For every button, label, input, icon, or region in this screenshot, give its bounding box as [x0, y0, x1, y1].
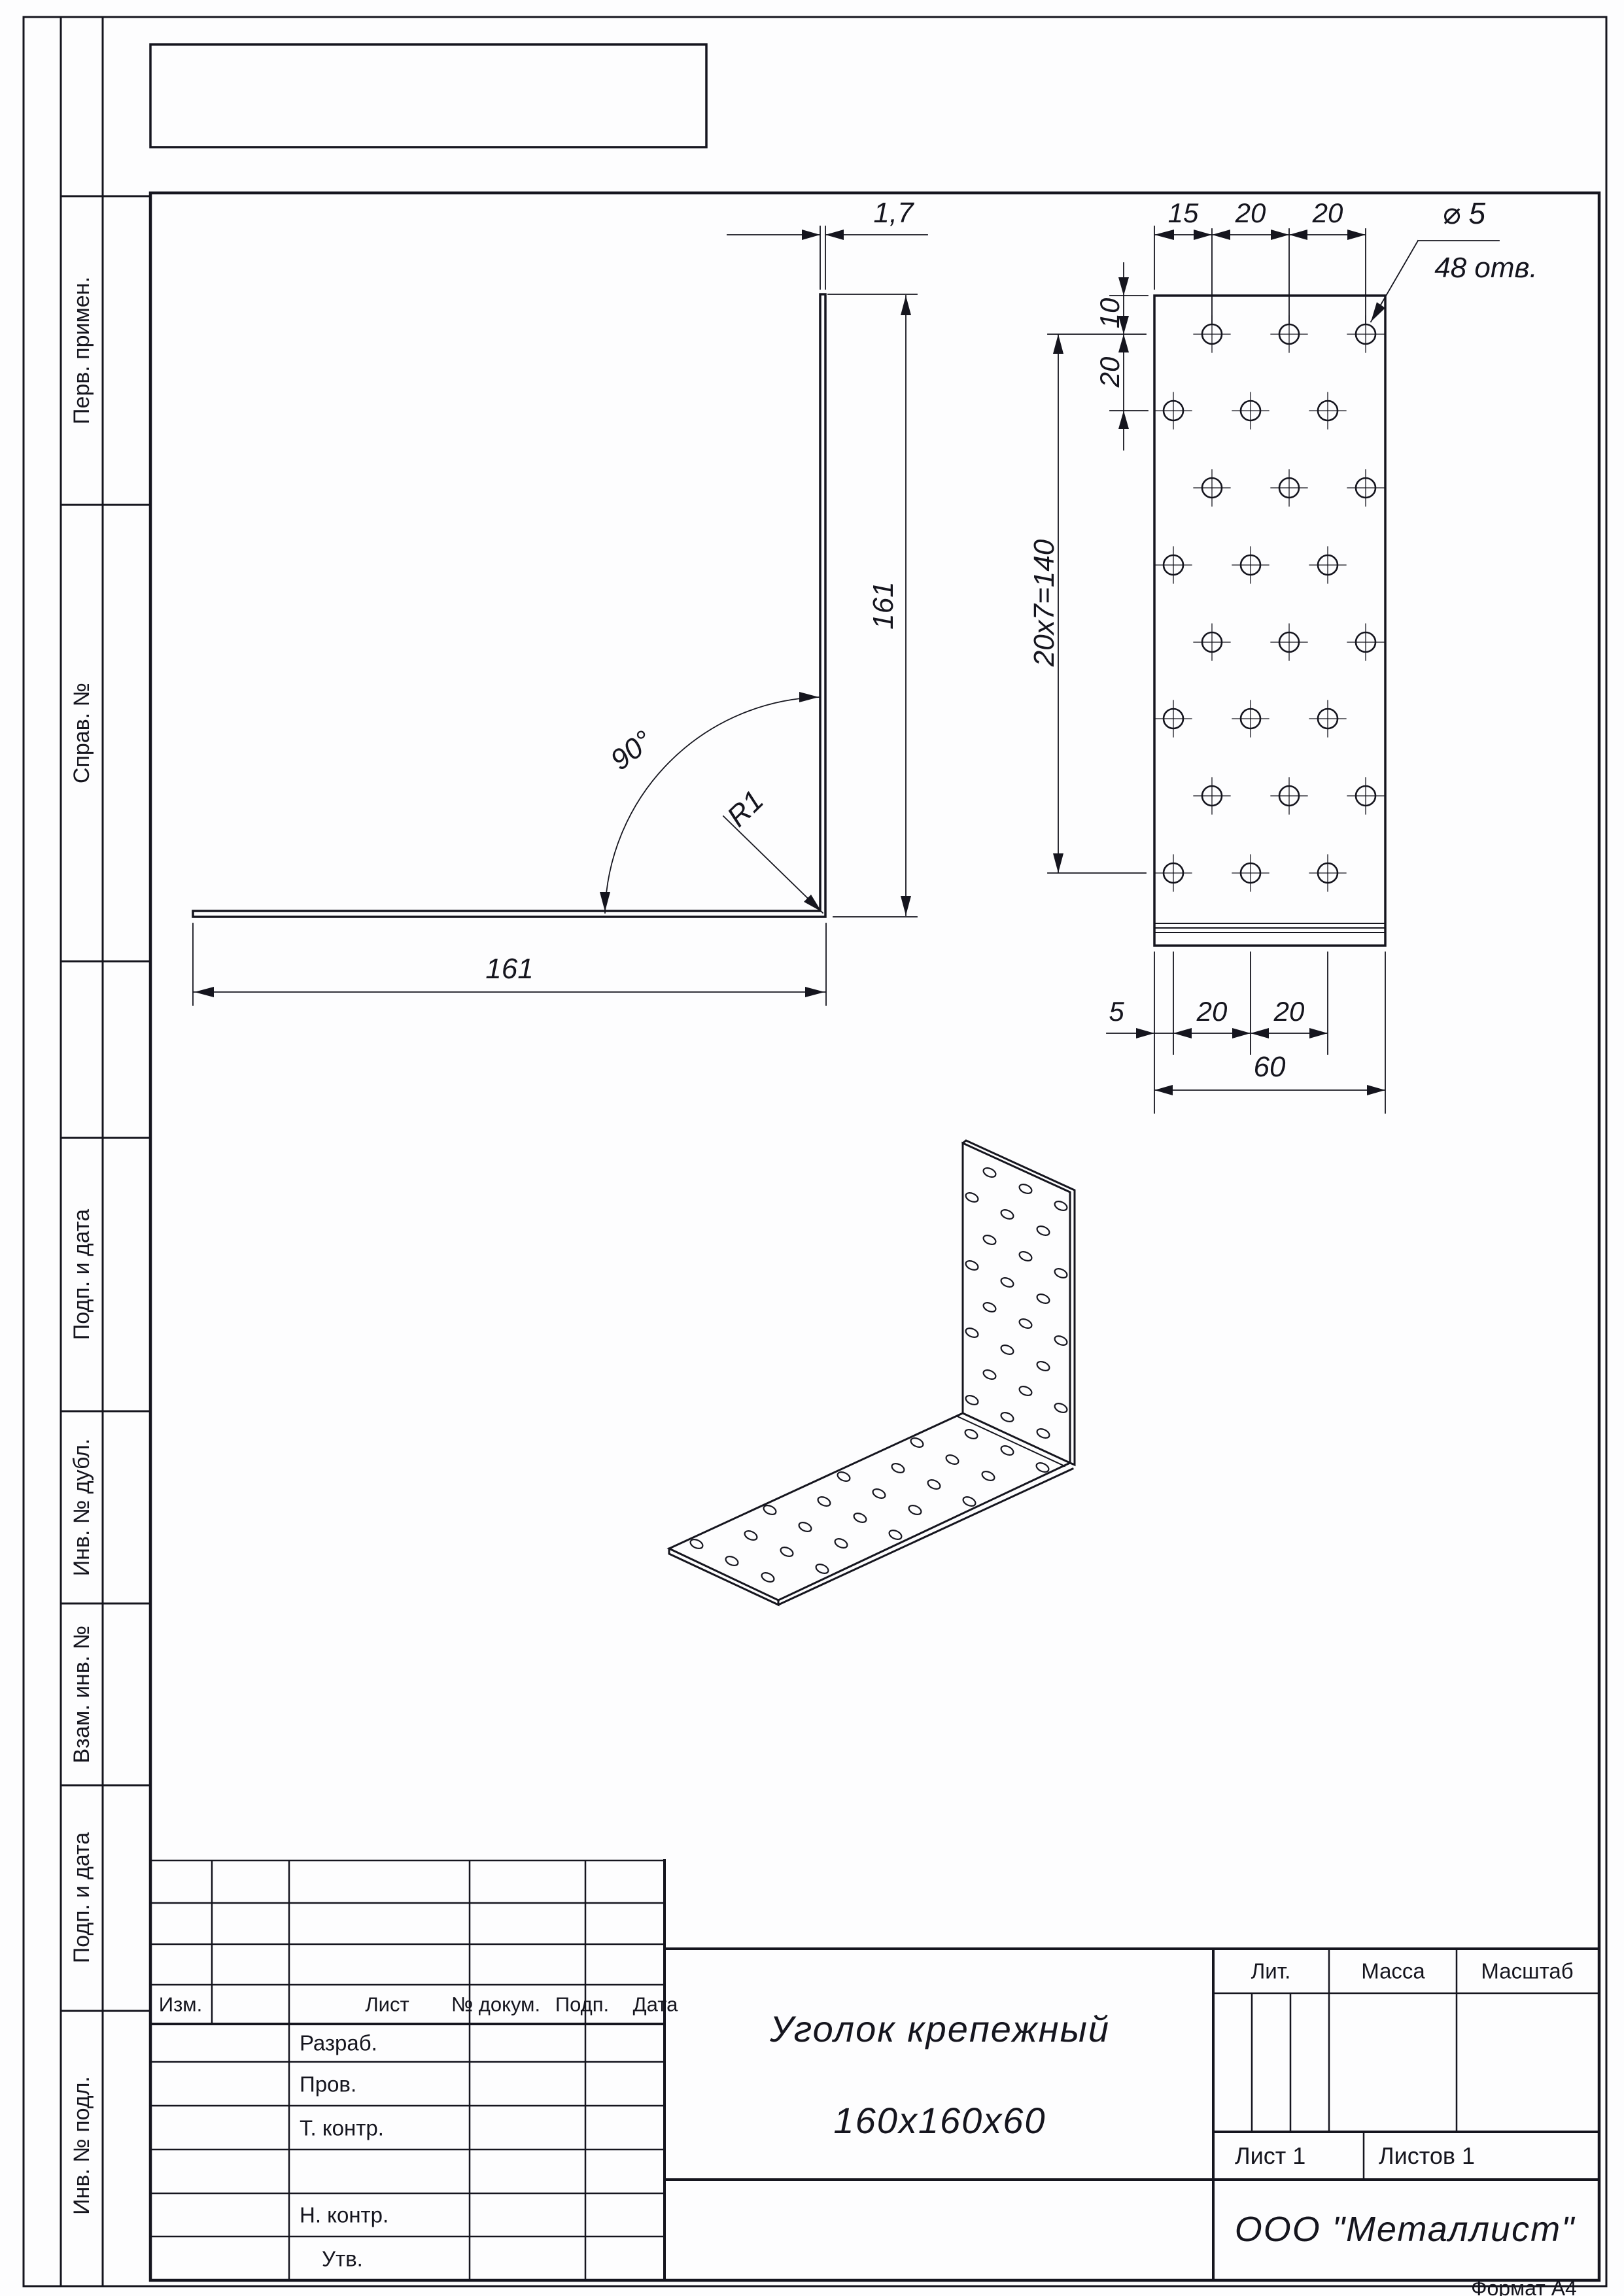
- tb-role-utv: Утв.: [322, 2248, 363, 2270]
- hole-count-note: 48 отв.: [1434, 254, 1537, 283]
- tb-mass-label: Масса: [1361, 1961, 1425, 1982]
- dim-pitch-top-1: 20: [1235, 199, 1266, 227]
- dim-offset-bottom: 5: [1109, 998, 1124, 1025]
- margin-label-podp-data-1: Подп. и дата: [71, 1209, 93, 1340]
- tb-header-izm: Изм.: [159, 1995, 202, 2015]
- tb-lit-label: Лит.: [1251, 1961, 1291, 1982]
- tb-header-podp: Подп.: [555, 1995, 609, 2015]
- dim-pitch-bottom-1: 20: [1197, 998, 1228, 1025]
- hole-diameter-note: ⌀ 5: [1442, 198, 1485, 228]
- margin-label-perv-primen: Перв. примен.: [71, 277, 93, 424]
- org-name: ООО "Металлист": [1235, 2212, 1575, 2247]
- format-note: Формат А4: [1471, 2278, 1577, 2296]
- tb-role-prov: Пров.: [300, 2074, 356, 2095]
- margin-label-inv-podl: Инв. № подл.: [71, 2076, 93, 2215]
- drawing-sheet: 1,7 161 161 90° R1 15 20 20 ⌀ 5 48 отв. …: [0, 0, 1624, 2296]
- tb-role-nkontr: Н. контр.: [300, 2204, 389, 2226]
- drawing-canvas: [0, 0, 1624, 2296]
- front-view-holes: [1155, 316, 1384, 891]
- side-view-linework: [193, 226, 927, 1005]
- tb-sheet: Лист 1: [1235, 2144, 1305, 2168]
- dim-pitch-top-2: 20: [1313, 199, 1343, 227]
- tb-header-doc-no: № докум.: [451, 1995, 540, 2015]
- dim-rows-total: 20х7=140: [1030, 540, 1059, 667]
- tb-scale-label: Масштаб: [1481, 1961, 1573, 1982]
- dim-edge-top: 10: [1096, 298, 1124, 329]
- iso-view-linework: [669, 1140, 1075, 1605]
- dim-thickness: 1,7: [873, 199, 913, 228]
- tb-header-data: Дата: [633, 1995, 678, 2015]
- margin-label-inv-dubl: Инв. № дубл.: [71, 1439, 93, 1577]
- dim-height: 161: [869, 581, 898, 629]
- part-name: Уголок крепежный: [770, 2011, 1110, 2048]
- iso-view-holes: [689, 1166, 1068, 1583]
- dim-width-total: 60: [1254, 1053, 1286, 1082]
- dim-length: 161: [485, 955, 533, 984]
- dim-pitch-left: 20: [1096, 357, 1124, 388]
- page-border: [24, 17, 1606, 2286]
- tb-role-tkontr: Т. контр.: [300, 2117, 384, 2139]
- tb-header-list: Лист: [365, 1995, 409, 2015]
- dim-offset-top: 15: [1168, 199, 1199, 227]
- part-size: 160х160х60: [833, 2102, 1046, 2139]
- margin-label-podp-data-2: Подп. и дата: [71, 1832, 93, 1963]
- side-view-arrows: [194, 230, 911, 997]
- tb-role-razrab: Разраб.: [300, 2032, 377, 2054]
- tb-sheets: Листов 1: [1379, 2144, 1475, 2168]
- margin-label-sprav-no: Справ. №: [71, 683, 93, 783]
- top-stamp-box: [150, 44, 706, 147]
- margin-label-vzam-inv: Взам. инв. №: [71, 1626, 93, 1764]
- dim-pitch-bottom-2: 20: [1274, 998, 1305, 1025]
